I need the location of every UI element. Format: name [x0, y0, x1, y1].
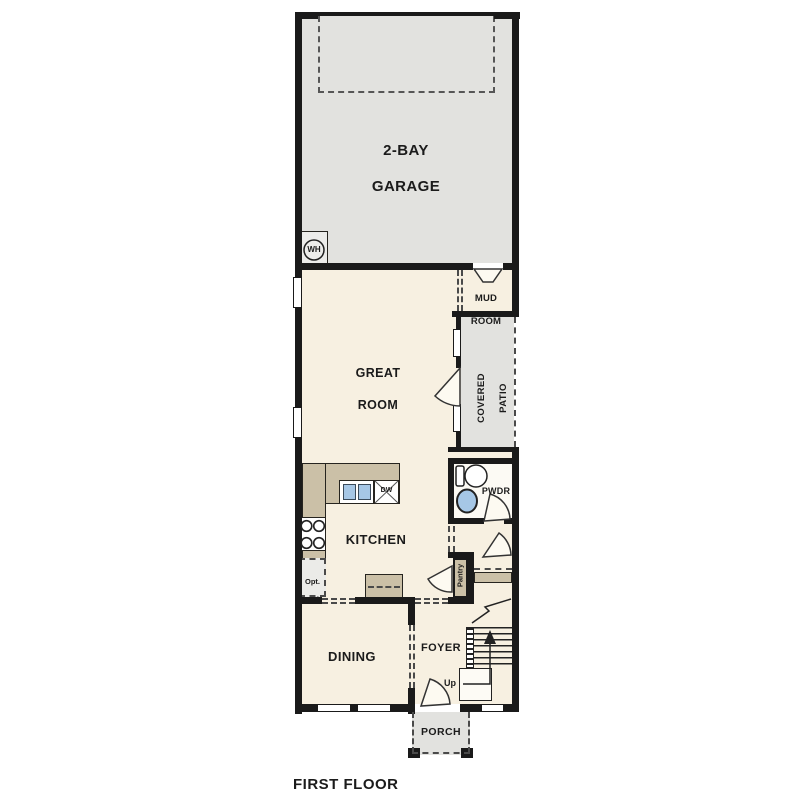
plan-title: FIRST FLOOR: [293, 776, 513, 794]
closet-rod-dashed: [474, 568, 512, 570]
garage-door-dashed-outline: [318, 16, 495, 93]
window: [357, 704, 391, 712]
window: [481, 704, 504, 712]
wall: [503, 263, 519, 270]
wall: [456, 357, 461, 368]
wall: [448, 597, 474, 604]
mud-room-label: MUD ROOM: [456, 281, 516, 327]
window: [453, 329, 461, 357]
patio-open-edge-dashed: [514, 317, 516, 447]
wall: [295, 12, 520, 16]
window: [453, 404, 461, 432]
opening-dashed: [413, 625, 415, 688]
dining-label: DINING: [307, 649, 397, 665]
water-heater-label: WH: [301, 245, 327, 255]
wall: [448, 518, 484, 524]
wall: [456, 432, 461, 447]
powder-label: PWDR: [476, 486, 516, 497]
wall: [503, 704, 519, 712]
wall: [512, 12, 519, 317]
opening-dashed: [322, 598, 355, 600]
opening-dashed: [409, 625, 411, 688]
kitchen-sink-basin-right: [358, 484, 371, 500]
dishwasher-label: DW: [374, 487, 399, 495]
wall: [408, 597, 415, 625]
foyer-label: FOYER: [401, 642, 481, 655]
wall: [295, 12, 318, 19]
wall: [448, 458, 454, 524]
island-dashed-line: [368, 586, 400, 588]
opening-dashed: [415, 602, 448, 604]
opening-dashed: [415, 598, 448, 600]
wall: [448, 458, 513, 464]
kitchen-label: KITCHEN: [326, 532, 426, 548]
wall: [295, 12, 302, 714]
porch-label: PORCH: [406, 726, 476, 739]
up-label: Up: [442, 678, 458, 689]
stair-landing: [459, 668, 492, 701]
opt-ref-label: Opt. Ref: [299, 568, 326, 604]
wall: [448, 447, 519, 452]
wall: [355, 597, 411, 604]
wall: [390, 704, 415, 712]
opening-dashed: [322, 602, 355, 604]
garage-label: 2-BAY GARAGE: [346, 124, 466, 196]
opening-dashed: [448, 526, 450, 552]
wall: [295, 704, 318, 712]
covered-patio-label: COVERED PATIO: [465, 353, 509, 443]
range: [299, 517, 326, 551]
wall: [460, 704, 482, 712]
floor-plan: 2-BAY GARAGE WH MUD ROOM GREAT ROOM COVE…: [0, 0, 810, 810]
window: [317, 704, 351, 712]
wall: [295, 263, 473, 270]
closet-shelf: [474, 572, 512, 583]
great-room-label: GREAT ROOM: [333, 349, 423, 413]
porch-edge-dashed: [412, 752, 470, 754]
window: [293, 407, 302, 438]
kitchen-sink-basin-left: [343, 484, 356, 500]
opening-dashed: [453, 526, 455, 552]
pantry-label: Pantry: [456, 556, 465, 596]
wall: [504, 518, 512, 524]
window: [293, 277, 302, 308]
